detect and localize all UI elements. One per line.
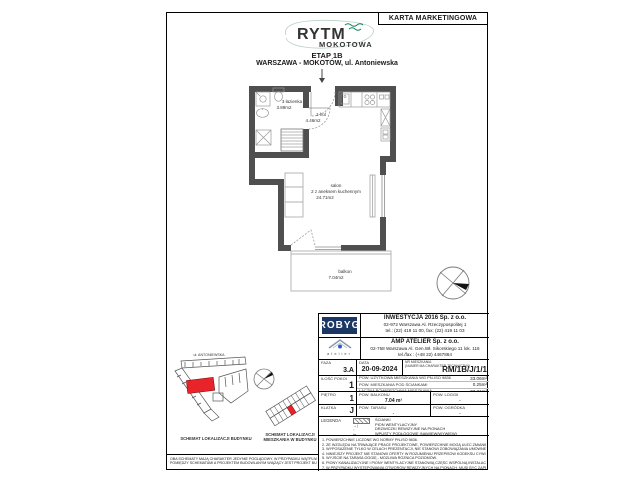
bathroom-fixtures [256, 88, 284, 145]
row-faza-data-nr: FAZA 3.A DATA 20-09-2024 NR MIESZKANIA (… [319, 360, 489, 376]
living-label-2: 2 z aneksem kuchennym [311, 189, 361, 194]
loggia-value: - [431, 398, 489, 404]
robyg-logo: ROBYG [322, 317, 357, 334]
studio-name: AMP ATELIER Sp. z o.o. [361, 339, 489, 346]
stage-text: ETAP 1B [312, 51, 343, 60]
klatka-cell: KLATKA J [319, 405, 357, 416]
legend-symbols: →| ▫ ⇆ [353, 418, 375, 434]
floor-plan: 3 łazienka 3.89m2 1 hol 4.46m2 salon 2 z… [241, 83, 401, 303]
hall-area: 4.46m2 [305, 118, 321, 123]
legend-item-drain: WPUSTY PODŁOGOWE (NAWIEW/WYWIEW) [375, 432, 487, 435]
investor-phone: tel.: (22) 419 11 00, fax: (22) 419 11 0… [361, 328, 489, 334]
location-label: WARSZAWA - MOKOTÓW, ul. Antoniewska [167, 60, 487, 67]
studio-logo-cell: atelier [319, 338, 361, 359]
area-total-label: ŁĄCZNA POWIERZCHNIA MIESZKANIA [357, 389, 470, 391]
studio-phone: tel./fax : (+48 22) 4467864 [361, 352, 489, 358]
brand-line2: MOKOTOWA [319, 40, 373, 49]
schematics-note: OBA SCHEMATY MAJĄ CHARAKTER JEDYNIE POGL… [167, 454, 319, 471]
windows [315, 175, 385, 250]
bathroom-area: 3.89m2 [276, 105, 292, 110]
room-labels: 3 łazienka 3.89m2 1 hol 4.46m2 salon 2 z… [276, 99, 361, 280]
brand-logo: RYTM MOKOTOWA [279, 19, 379, 53]
row-pietro: PIĘTRO 1 POW. BALKONU 7.04 m² POW. LOGGI… [319, 392, 489, 405]
title-block: ROBYG INWESTYCJA 2016 Sp. z o.o. 02-972 … [318, 313, 489, 471]
doors [291, 92, 335, 245]
robyg-logo-text: ROBYG [319, 320, 360, 331]
shaft-hatched [281, 129, 303, 151]
bathroom-label: 3 łazienka [282, 99, 303, 104]
corner-title-text: KARTA MARKETINGOWA [389, 15, 477, 22]
faza-label: FAZA [319, 360, 356, 366]
taras-value: - [357, 411, 430, 417]
studio-address: 02-758 Warszawa Al. Gen.Wł. Sikorskiego … [361, 346, 489, 352]
atelier-roof-icon [327, 338, 353, 350]
nr-cell: NR MIESZKANIA (NUMER MA CHARAKTER TECHNI… [403, 360, 489, 375]
building-caption-text: SCHEMAT LOKALIZACJI BUDYNKU [180, 436, 251, 441]
walls [249, 86, 396, 251]
loggia-cell: POW. LOGGII - [431, 392, 489, 404]
row-studio: atelier AMP ATELIER Sp. z o.o. 02-758 Wa… [319, 338, 489, 360]
hall-label: 1 hol [316, 112, 326, 117]
corner-title: KARTA MARKETINGOWA [378, 13, 487, 25]
row-legend: LEGENDA →| ▫ ⇆ ŚCIANKI PION WENTYLACYJNY… [319, 417, 489, 436]
marketing-card-page: KARTA MARKETINGOWA RYTM MOKOTOWA ETAP 1B… [0, 0, 640, 480]
area-total-value: 33.31m² [470, 389, 489, 391]
pietro-value: 1 [350, 394, 354, 403]
compass-icon [433, 263, 473, 303]
kitchen-counter [339, 92, 390, 107]
stage-label: ETAP 1B [167, 51, 487, 60]
row-klatka: KLATKA J POW. TARASU - POW. OGRÓDKA - [319, 405, 489, 417]
logo-waves-icon [345, 24, 363, 31]
areas-cell: POW. UŻYTKOWA MIESZKANIA WG PN-ISO 9836 … [357, 376, 489, 391]
card-frame: KARTA MARKETINGOWA RYTM MOKOTOWA ETAP 1B… [166, 12, 488, 470]
legend-texts: ŚCIANKI PION WENTYLACYJNY DRZWICZKI REWI… [375, 418, 487, 434]
area-walls-value: 0.25m² [473, 382, 489, 387]
building-caption: SCHEMAT LOKALIZACJI BUDYNKU [173, 436, 259, 441]
studio-info: AMP ATELIER Sp. z o.o. 02-758 Warszawa A… [361, 338, 489, 359]
notes-cell: 1. POWIERZCHNIE LICZONE WG NORMY PN-ISO … [319, 436, 489, 472]
ogrodek-value: - [431, 411, 489, 417]
taras-cell: POW. TARASU - [357, 405, 431, 416]
row-notes: 1. POWIERZCHNIE LICZONE WG NORMY PN-ISO … [319, 436, 489, 472]
row-areas: ILOŚĆ POKOI 1 POW. UŻYTKOWA MIESZKANIA W… [319, 376, 489, 392]
living-label-1: salon [331, 183, 342, 188]
faza-cell: FAZA 3.A [319, 360, 357, 375]
entrance-arrow-icon [315, 68, 329, 83]
data-value: 20-09-2024 [357, 366, 402, 373]
developer-logo-cell: ROBYG [319, 314, 361, 337]
street-label: ul. ANTONIEWSKA [193, 353, 225, 357]
location-text: WARSZAWA - MOKOTÓW, ul. Antoniewska [256, 60, 398, 67]
area-row: ŁĄCZNA POWIERZCHNIA MIESZKANIA 33.31m² [357, 389, 489, 391]
legend-floor-drain-icon: ⇆ [353, 433, 375, 435]
nr-value: RM/1B/J/1/1 [442, 365, 487, 374]
area-used-value: 33.06m² [470, 376, 489, 381]
note-line: 7. W PRZYPADKU WYSTĘPOWANIA OTWORÓW REWI… [322, 466, 486, 471]
ogrodek-cell: POW. OGRÓDKA - [431, 405, 489, 416]
balcony-label: balkon [338, 269, 352, 274]
note-line: 6. PIONY KANALIZACYJNE I PIONY WENTYLACY… [322, 461, 486, 466]
rooms-count-cell: ILOŚĆ POKOI 1 [319, 376, 357, 391]
balkon-cell: POW. BALKONU 7.04 m² [357, 392, 431, 404]
atelier-logo-text: atelier [319, 351, 360, 356]
faza-value: 3.A [343, 367, 354, 374]
investor-name: INWESTYCJA 2016 Sp. z o.o. [361, 315, 489, 322]
row-investor: ROBYG INWESTYCJA 2016 Sp. z o.o. 02-972 … [319, 314, 489, 338]
unit-caption-line2: MIESZKANIA W BUDYNKU [261, 437, 319, 442]
investor-info: INWESTYCJA 2016 Sp. z o.o. 02-972 Warsza… [361, 314, 489, 337]
balcony-area: 7.04m2 [328, 275, 344, 280]
area-used-label: POW. UŻYTKOWA MIESZKANIA WG PN-ISO 9836 [357, 376, 470, 381]
schematics-note-line2: POMIĘDZY SCHEMATAMI A PROJEKTEM BUDOWLAN… [170, 461, 317, 465]
balkon-value: 7.04 m² [357, 398, 430, 404]
unit-schematic [265, 383, 319, 433]
legend-cell: LEGENDA →| ▫ ⇆ ŚCIANKI PION WENTYLACYJNY… [319, 417, 489, 435]
tall-units [381, 109, 390, 141]
unit-caption: SCHEMAT LOKALIZACJI MIESZKANIA W BUDYNKU [261, 432, 319, 442]
area-walls-label: POW. MIESZKANIA POD ŚCIANKAMI [357, 383, 473, 388]
pietro-cell: PIĘTRO 1 [319, 392, 357, 404]
data-cell: DATA 20-09-2024 [357, 360, 403, 375]
legend-label: LEGENDA [321, 418, 353, 434]
rooms-count-value: 1 [349, 380, 354, 390]
living-area: 24.71m2 [316, 195, 334, 200]
klatka-value: J [350, 406, 354, 415]
